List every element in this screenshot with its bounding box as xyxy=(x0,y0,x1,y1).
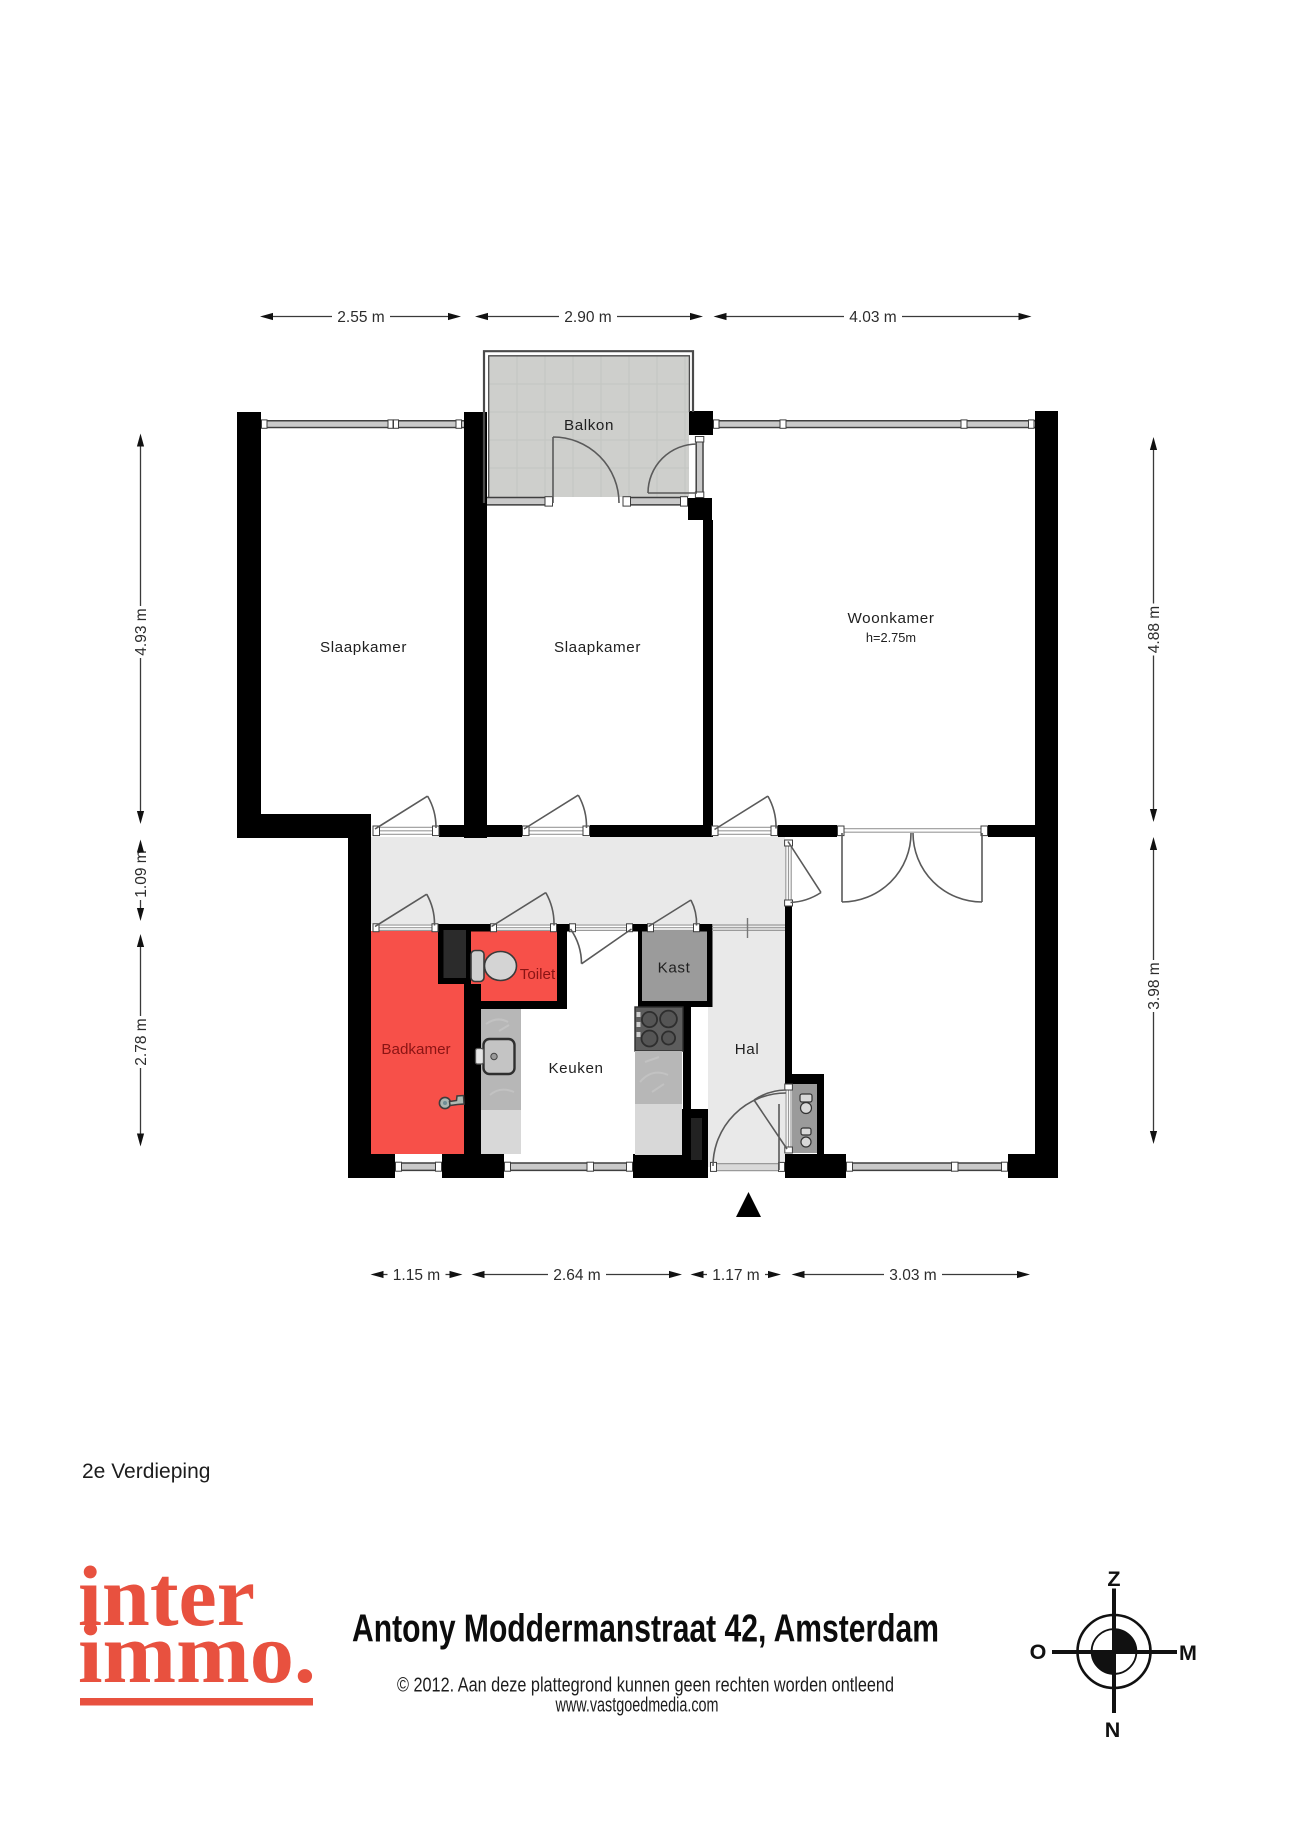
svg-text:Toilet: Toilet xyxy=(520,966,556,983)
svg-text:O: O xyxy=(1030,1640,1047,1664)
svg-text:2.64 m: 2.64 m xyxy=(553,1267,600,1284)
svg-text:2.78 m: 2.78 m xyxy=(133,1018,150,1065)
svg-text:1.09 m: 1.09 m xyxy=(133,850,150,897)
svg-text:2e Verdieping: 2e Verdieping xyxy=(82,1460,210,1483)
svg-text:Keuken: Keuken xyxy=(548,1060,603,1077)
svg-text:1.15 m: 1.15 m xyxy=(393,1267,440,1284)
svg-text:N: N xyxy=(1105,1718,1121,1742)
svg-text:Kast: Kast xyxy=(658,960,691,977)
svg-text:Woonkamer: Woonkamer xyxy=(848,610,935,627)
svg-text:4.93 m: 4.93 m xyxy=(133,608,150,655)
svg-text:immo.: immo. xyxy=(78,1605,316,1701)
svg-text:4.88 m: 4.88 m xyxy=(1146,606,1163,653)
svg-text:4.03 m: 4.03 m xyxy=(849,309,896,326)
svg-text:Z: Z xyxy=(1107,1567,1120,1591)
svg-text:M: M xyxy=(1179,1641,1197,1665)
svg-text:Slaapkamer: Slaapkamer xyxy=(320,639,407,656)
svg-text:2.55 m: 2.55 m xyxy=(337,309,384,326)
svg-text:3.03 m: 3.03 m xyxy=(889,1267,936,1284)
svg-text:2.90 m: 2.90 m xyxy=(564,309,611,326)
svg-text:www.vastgoedmedia.com: www.vastgoedmedia.com xyxy=(555,1694,719,1717)
svg-text:Antony Moddermanstraat 42, Ams: Antony Moddermanstraat 42, Amsterdam xyxy=(352,1608,939,1651)
svg-text:Slaapkamer: Slaapkamer xyxy=(554,639,641,656)
svg-text:Balkon: Balkon xyxy=(564,417,614,434)
svg-text:3.98 m: 3.98 m xyxy=(1146,962,1163,1009)
svg-text:1.17 m: 1.17 m xyxy=(712,1267,759,1284)
svg-text:h=2.75m: h=2.75m xyxy=(866,630,916,645)
svg-text:Badkamer: Badkamer xyxy=(381,1041,450,1058)
svg-text:Hal: Hal xyxy=(735,1041,760,1058)
